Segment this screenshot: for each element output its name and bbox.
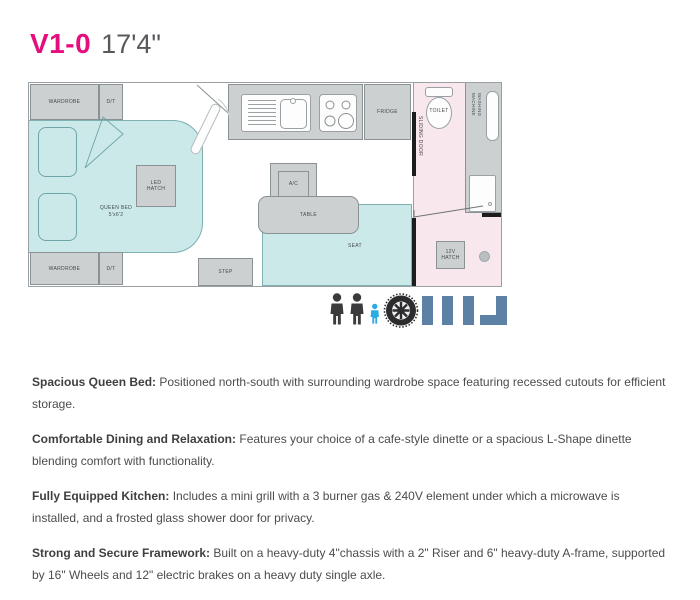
wheel-icon xyxy=(385,294,418,327)
vanity-drain-icon xyxy=(488,202,492,206)
toilet-cistern xyxy=(425,87,453,97)
fridge: FRIDGE xyxy=(364,84,411,140)
drawer-top: D/T xyxy=(99,84,123,120)
page-title: V1-0 17'4" xyxy=(30,28,161,60)
stove xyxy=(319,94,357,132)
wardrobe-bottom: WARDROBE xyxy=(30,252,99,285)
vanity-sink xyxy=(469,175,496,212)
pillow xyxy=(38,127,77,177)
feature-title: Spacious Queen Bed: xyxy=(32,375,156,389)
fridge-label: FRIDGE xyxy=(377,109,398,115)
faucet-icon xyxy=(290,98,296,104)
adult-icon xyxy=(331,293,344,324)
feature-kitchen: Fully Equipped Kitchen: Includes a mini … xyxy=(32,486,670,529)
hatch-12v: 12VHATCH xyxy=(436,241,465,269)
feature-title: Comfortable Dining and Relaxation: xyxy=(32,432,236,446)
model-length: 17'4" xyxy=(101,29,161,60)
queen-bed-label: QUEEN BED5'x6'2 xyxy=(81,205,151,219)
shower-wall xyxy=(482,213,501,217)
adult-icon xyxy=(351,293,364,324)
washing-machine-label: WASHING MACHINE xyxy=(470,93,482,141)
feature-title: Fully Equipped Kitchen: xyxy=(32,489,169,503)
feature-framework: Strong and Secure Framework: Built on a … xyxy=(32,543,670,586)
wardrobe-top: WARDROBE xyxy=(30,84,99,120)
table-label: TABLE xyxy=(300,212,317,218)
step: STEP xyxy=(198,258,253,286)
led-hatch: LEDHATCH xyxy=(136,165,176,207)
floorplan: WARDROBE D/T WARDROBE D/T LEDHATCH QUEEN… xyxy=(28,82,502,287)
rear-room-wall xyxy=(412,218,416,286)
stove-burners xyxy=(320,95,356,131)
toilet-label: TOILET xyxy=(419,108,459,115)
sliding-door-wall xyxy=(412,112,416,176)
kitchen-counter xyxy=(228,84,363,140)
ac-label: A/C xyxy=(289,181,298,187)
led-hatch-label: LEDHATCH xyxy=(147,180,165,192)
entry-door-frame xyxy=(197,85,228,113)
washing-machine xyxy=(486,91,499,141)
cafe-dinette-icon xyxy=(422,296,453,325)
sliding-door-label: SLIDING DOOR xyxy=(417,116,423,176)
step-label: STEP xyxy=(218,269,232,275)
table: TABLE xyxy=(258,196,359,234)
wardrobe-top-label: WARDROBE xyxy=(49,99,81,105)
capacity-icons xyxy=(322,292,512,330)
sink xyxy=(241,94,311,132)
seat-label: SEAT xyxy=(348,243,362,249)
sink-drainer xyxy=(248,100,276,128)
wardrobe-bottom-label: WARDROBE xyxy=(49,266,81,272)
feature-queen-bed: Spacious Queen Bed: Positioned north-sou… xyxy=(32,372,670,415)
pillow xyxy=(38,193,77,241)
shower-drain-icon xyxy=(479,251,490,262)
dt-bottom-label: D/T xyxy=(107,266,116,272)
model-name: V1-0 xyxy=(30,28,91,60)
feature-title: Strong and Secure Framework: xyxy=(32,546,210,560)
hatch-12v-label: 12VHATCH xyxy=(441,249,459,261)
dt-top-label: D/T xyxy=(107,99,116,105)
child-icon xyxy=(371,304,379,324)
feature-dining: Comfortable Dining and Relaxation: Featu… xyxy=(32,429,670,472)
l-shape-dinette-icon xyxy=(463,296,507,325)
drawer-bottom: D/T xyxy=(99,252,123,285)
